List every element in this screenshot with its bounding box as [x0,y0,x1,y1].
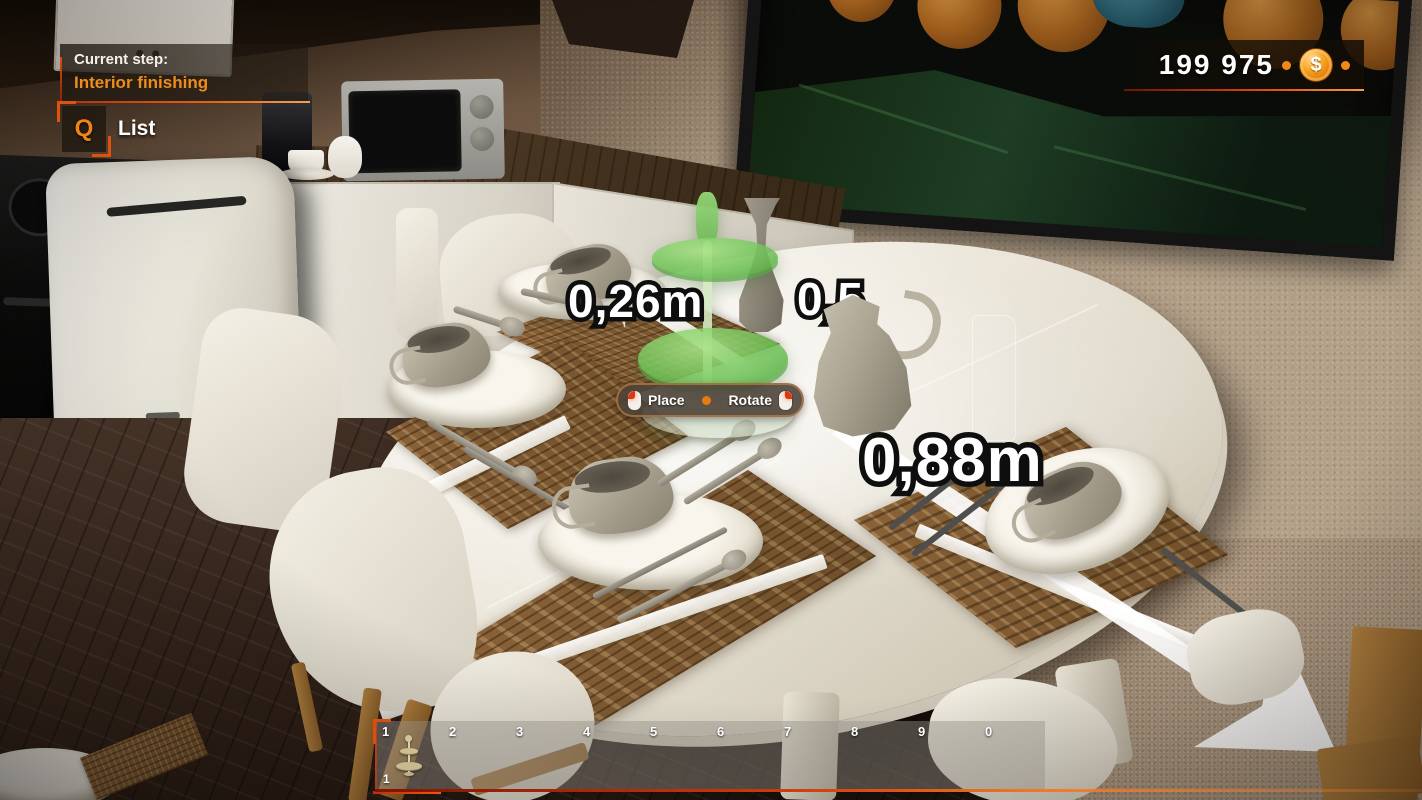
mouse-right-click-icon[interactable] [778,390,793,411]
hotbar-slot-2[interactable]: 2 [442,721,509,791]
hotbar-slot-1[interactable]: 1 1 [375,721,442,791]
hotbar-slot-3[interactable]: 3 [509,721,576,791]
money-panel: 199 975 $ [1124,40,1364,90]
hotbar-slot-0[interactable]: 0 [978,721,1045,791]
list-button[interactable]: Q List [62,106,155,152]
tooltip-separator-dot [702,396,711,405]
dollar-coin-icon: $ [1299,48,1333,82]
q-key-icon[interactable]: Q [62,106,106,152]
measurement-label-right: 0,88m 0,88m [862,430,1043,492]
list-button-label: List [118,117,155,141]
money-dot-left [1282,61,1291,70]
ghost-bottom-tier [638,328,788,390]
hotbar: 1 1 2 3 4 5 6 7 8 9 0 [375,721,1045,791]
hotbar-slot-4[interactable]: 4 [576,721,643,791]
measurement-label-left: 0,26m 0,26m [568,278,703,324]
hotbar-slot-9[interactable]: 9 [911,721,978,791]
mouse-left-click-icon[interactable] [627,390,642,411]
hotbar-underline [375,789,1422,792]
white-jug [804,282,926,438]
current-step-panel: Current step: Interior finishing [60,44,308,102]
current-step-label: Current step: [74,51,294,68]
hotbar-slot-8[interactable]: 8 [844,721,911,791]
hotbar-slot-6[interactable]: 6 [710,721,777,791]
money-dot-right [1341,61,1350,70]
drinking-glass [972,315,1016,441]
game-screen: 0,5 0,5 0,26m 0,26m 0,88m 0,88m Current … [0,0,1422,800]
place-action-label[interactable]: Place [648,392,685,408]
cake-stand-icon [396,735,422,779]
ghost-top-tier [652,238,778,278]
placement-tooltip: Place Rotate [616,383,804,417]
hotbar-slot-7[interactable]: 7 [777,721,844,791]
q-key-letter: Q [75,115,94,143]
dollar-symbol: $ [1310,54,1321,77]
current-step-value: Interior finishing [74,73,294,93]
rotate-action-label[interactable]: Rotate [728,392,772,408]
hotbar-slot-count: 1 [383,772,390,786]
money-amount: 199 975 [1159,49,1274,81]
hotbar-slot-5[interactable]: 5 [643,721,710,791]
